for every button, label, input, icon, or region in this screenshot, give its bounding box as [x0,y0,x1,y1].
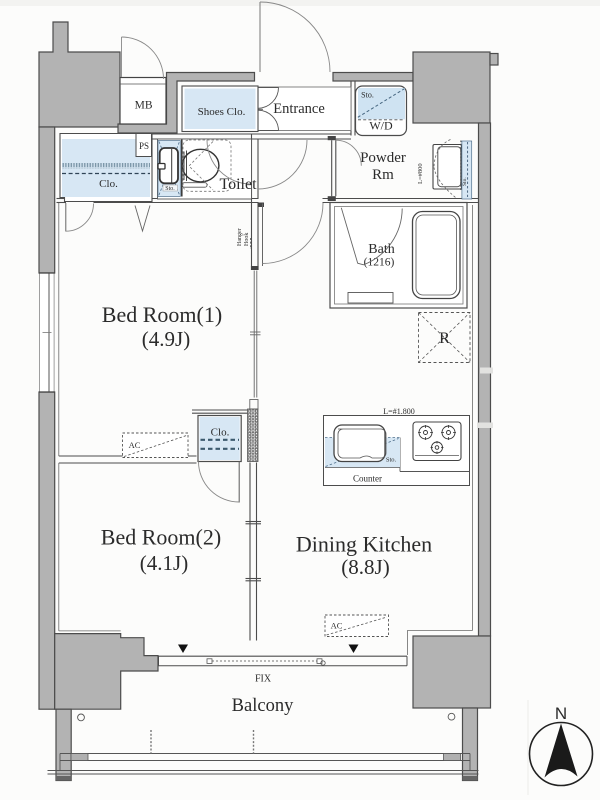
svg-text:Toilet: Toilet [219,176,257,193]
svg-text:Balcony: Balcony [232,696,294,716]
svg-text:Powder: Powder [360,150,406,166]
svg-text:Sto.: Sto. [361,91,374,100]
svg-text:MB: MB [135,100,153,112]
svg-text:R: R [439,330,450,347]
svg-text:L=#800: L=#800 [417,163,424,184]
svg-text:Clo.: Clo. [99,178,118,190]
svg-text:Shoes Clo.: Shoes Clo. [198,106,246,118]
svg-text:Entrance: Entrance [273,101,325,117]
svg-text:Hook: Hook [244,233,250,246]
svg-text:Bed Room(1): Bed Room(1) [102,302,222,327]
svg-text:Counter: Counter [353,474,382,484]
svg-text:FIX: FIX [255,674,272,685]
svg-text:AC: AC [129,440,141,450]
svg-text:AC: AC [331,621,343,631]
svg-text:(8.8J): (8.8J) [341,555,389,579]
svg-text:N: N [555,704,567,723]
svg-text:(4.9J): (4.9J) [142,327,190,351]
svg-text:W/D: W/D [369,119,393,133]
svg-text:Clo.: Clo. [211,427,230,439]
svg-text:Hanger: Hanger [237,228,243,246]
svg-text:Sto.: Sto. [165,186,175,192]
svg-text:(4.1J): (4.1J) [140,551,188,575]
svg-text:Sto.: Sto. [386,457,397,464]
svg-text:Dining Kitchen: Dining Kitchen [296,532,432,557]
svg-text:PS: PS [139,141,149,151]
svg-text:L=#1.800: L=#1.800 [383,407,414,416]
svg-text:Sto.: Sto. [462,177,468,186]
svg-text:Bed Room(2): Bed Room(2) [101,525,221,550]
svg-text:Rm: Rm [372,167,394,183]
